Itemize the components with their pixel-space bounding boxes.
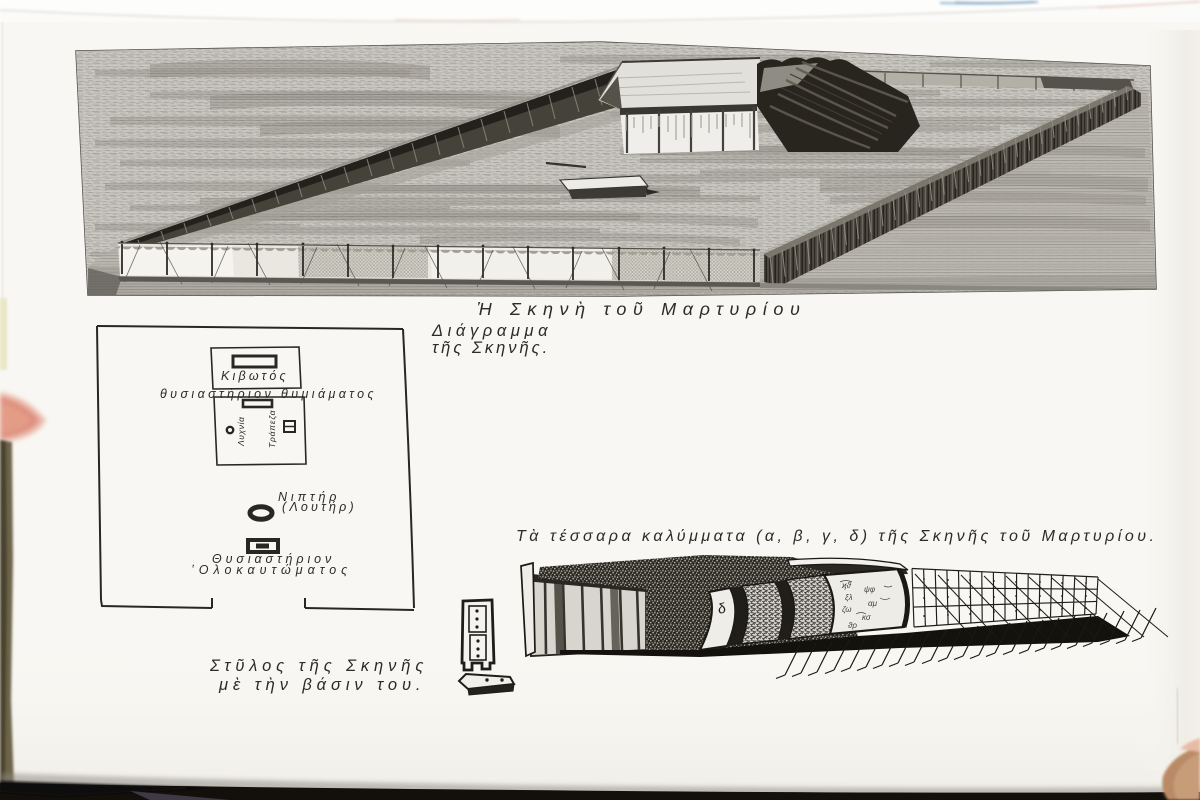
svg-text:Ἡ Σκηνὴ τοῦ Μαρτυρίου: Ἡ Σκηνὴ τοῦ Μαρτυρίου bbox=[477, 299, 807, 319]
svg-text:Κιβωτός: Κιβωτός bbox=[221, 369, 289, 383]
svg-text:κσ: κσ bbox=[862, 613, 872, 622]
svg-text:θυσιαστήριον θυμιάματος: θυσιαστήριον θυμιάματος bbox=[160, 387, 377, 401]
svg-text:Διάγραμμα: Διάγραμμα bbox=[431, 322, 552, 340]
svg-text:ʽΟλοκαυτώματος: ʽΟλοκαυτώματος bbox=[191, 563, 352, 577]
svg-text:τῆς Σκηνῆς.: τῆς Σκηνῆς. bbox=[432, 339, 550, 357]
svg-text:μὲ τὴν βάσιν του.: μὲ τὴν βάσιν του. bbox=[218, 676, 425, 694]
svg-text:Στῦλος τῆς Σκηνῆς: Στῦλος τῆς Σκηνῆς bbox=[209, 657, 428, 675]
svg-text:Τὰ τέσσαρα καλύμματα (α, β, γ,: Τὰ τέσσαρα καλύμματα (α, β, γ, δ) τῆς Σκ… bbox=[516, 528, 1158, 545]
svg-text:Λυχνία: Λυχνία bbox=[236, 416, 246, 447]
svg-text:ϑρ: ϑρ bbox=[848, 621, 857, 630]
svg-text:αμ: αμ bbox=[868, 599, 878, 608]
svg-text:(Λουτήρ): (Λουτήρ) bbox=[282, 500, 357, 514]
svg-text:ψφ: ψφ bbox=[864, 585, 875, 594]
svg-text:ζω: ζω bbox=[842, 605, 852, 614]
svg-text:Τράπεζα: Τράπεζα bbox=[267, 409, 277, 448]
svg-text:ξλ: ξλ bbox=[845, 593, 853, 602]
svg-text:ϗϑ: ϗϑ bbox=[841, 581, 852, 590]
